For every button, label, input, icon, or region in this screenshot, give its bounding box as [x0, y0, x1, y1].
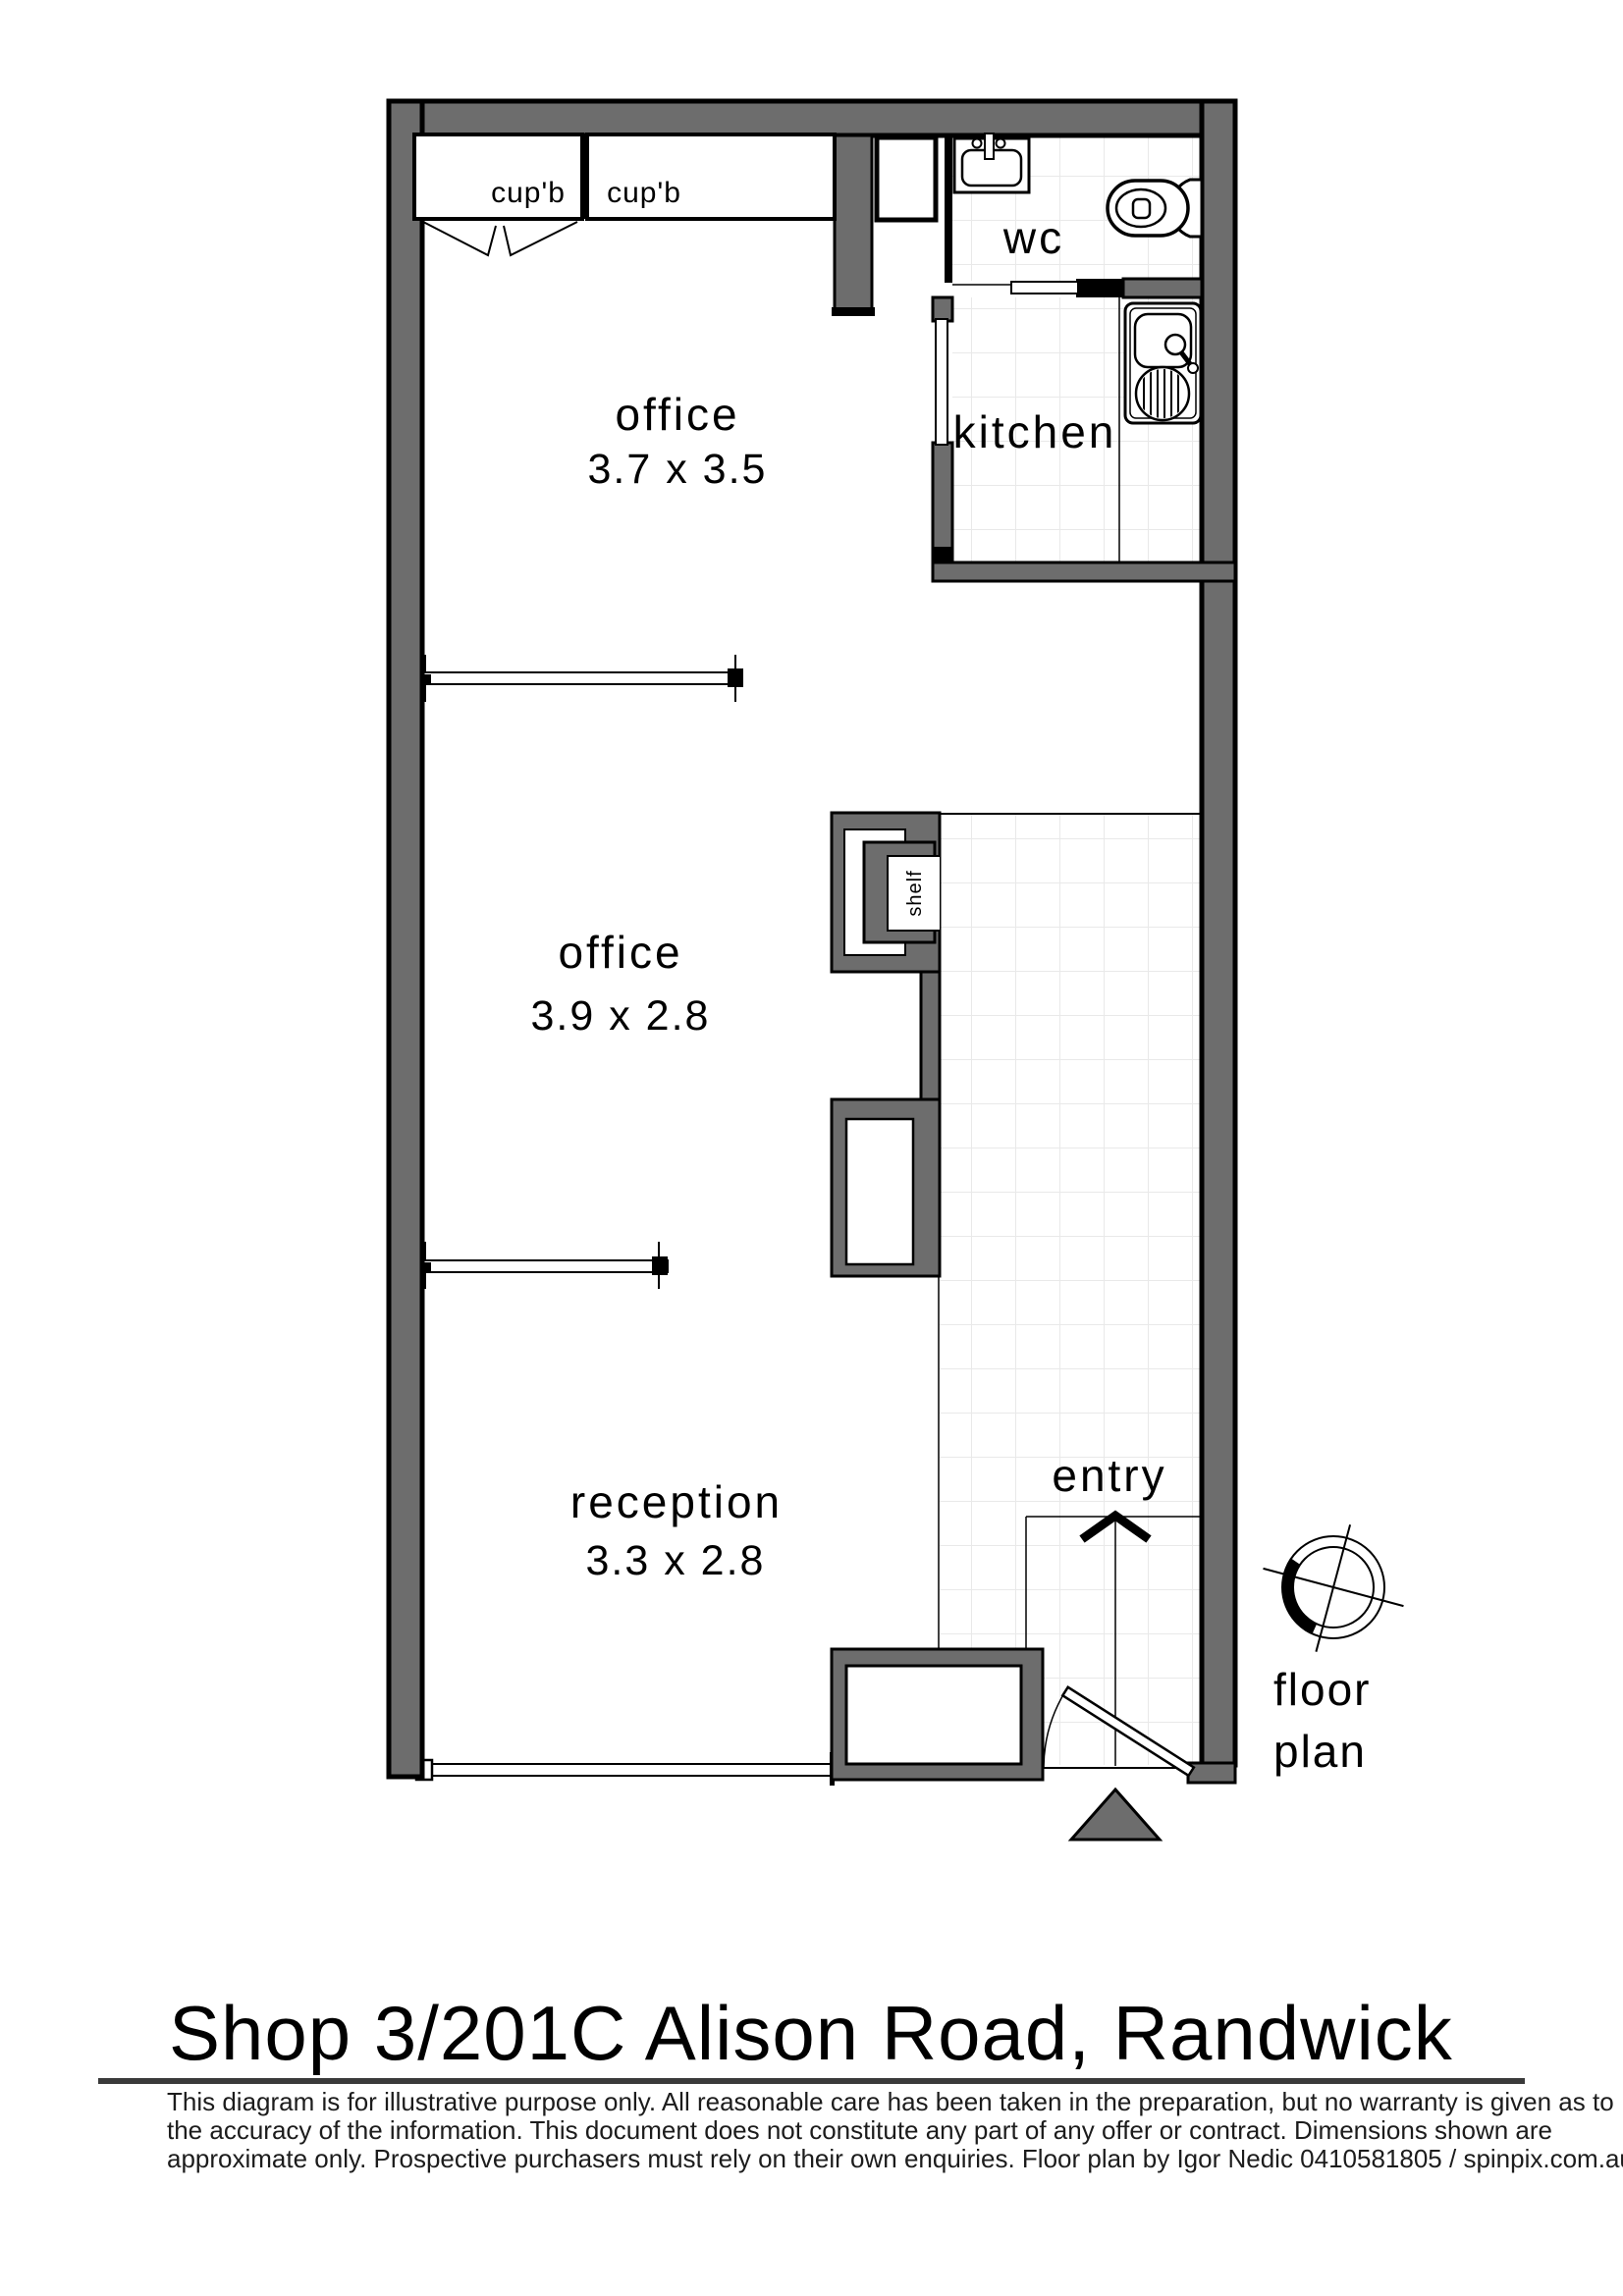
page-title: Shop 3/201C Alison Road, Randwick	[169, 1990, 1453, 2076]
room-dims-office-1: 3.7 x 3.5	[588, 446, 768, 493]
wall-right	[1202, 101, 1235, 1765]
wall-left	[389, 101, 422, 1777]
entry-triangle-icon	[1071, 1789, 1160, 1840]
bottom-closet	[832, 1649, 1043, 1780]
duct-column	[877, 137, 936, 220]
basin-spout	[985, 133, 994, 159]
caption-line-2: plan	[1273, 1726, 1367, 1777]
cupboard-right-label: cup'b	[607, 177, 681, 209]
lower-box-inner	[846, 1119, 913, 1264]
partition-office2-reception	[419, 1260, 668, 1272]
disclaimer-line-2: the accuracy of the information. This do…	[167, 2115, 1552, 2145]
wall-kitchen-left-lower	[933, 443, 952, 564]
shopfront-glazing	[419, 1764, 832, 1776]
wall-top	[389, 101, 1235, 135]
cupboard-left-label: cup'b	[491, 177, 566, 209]
kitchen-pocket-door-leaf	[936, 319, 947, 445]
disclaimer-line-1: This diagram is for illustrative purpose…	[167, 2087, 1614, 2116]
basin-icon	[954, 133, 1029, 192]
wall-office-wc	[835, 135, 872, 312]
partition2-end-cap	[652, 1256, 668, 1275]
wall-wc-kitchen-divider	[1123, 279, 1202, 297]
floor-plan-drawing: shelf cup'b cup'b	[0, 0, 1623, 2296]
disclaimer-line-3: approximate only. Prospective purchasers…	[167, 2144, 1623, 2173]
wall-kitchen-pocket-post	[934, 547, 953, 563]
room-label-office-2: office	[558, 927, 682, 978]
toilet-flush	[1133, 199, 1150, 218]
room-dims-reception: 3.3 x 2.8	[586, 1537, 766, 1584]
room-label-reception: reception	[570, 1476, 783, 1527]
kitchen-sink-icon	[1125, 303, 1201, 423]
wall-office-wc-cap	[832, 307, 875, 316]
closet-inner	[846, 1666, 1021, 1764]
partition1-end-cap	[728, 668, 743, 687]
room-label-kitchen: kitchen	[953, 406, 1117, 457]
wall-kitchen-bottom	[933, 562, 1235, 581]
wall-wc-left	[945, 135, 952, 283]
basin-tap-right	[997, 139, 1005, 148]
shelf-structure: shelf	[832, 813, 940, 972]
shelf-label: shelf	[904, 870, 926, 916]
cupboard-divider	[580, 134, 589, 219]
partition-office1-office2	[419, 672, 730, 684]
room-label-entry: entry	[1052, 1450, 1166, 1501]
compass-icon	[1246, 1506, 1421, 1671]
basin-tap-left	[973, 139, 982, 148]
sink-tap-knob	[1188, 363, 1198, 373]
sink-tap-base	[1165, 335, 1185, 354]
wall-kitchen-left-upper	[933, 297, 952, 321]
room-label-wc: wc	[1002, 212, 1064, 263]
wall-entry-return	[1188, 1763, 1235, 1783]
caption-line-1: floor	[1273, 1664, 1371, 1715]
wall-corridor-strip	[921, 972, 940, 1101]
room-dims-office-2: 3.9 x 2.8	[531, 992, 711, 1040]
corridor-floor-tiles	[940, 815, 1202, 1765]
room-label-office-1: office	[615, 389, 739, 440]
toilet-icon	[1108, 180, 1202, 237]
floor-plan-page: shelf cup'b cup'b	[0, 0, 1623, 2296]
lower-box-structure	[832, 1099, 940, 1276]
wc-door-leaf	[1011, 282, 1078, 294]
wall-wc-door-post	[1076, 279, 1123, 297]
footer: Shop 3/201C Alison Road, Randwick This d…	[98, 1990, 1623, 2173]
title-rule	[98, 2078, 1525, 2084]
compass-caption: floor plan	[1246, 1506, 1421, 1777]
